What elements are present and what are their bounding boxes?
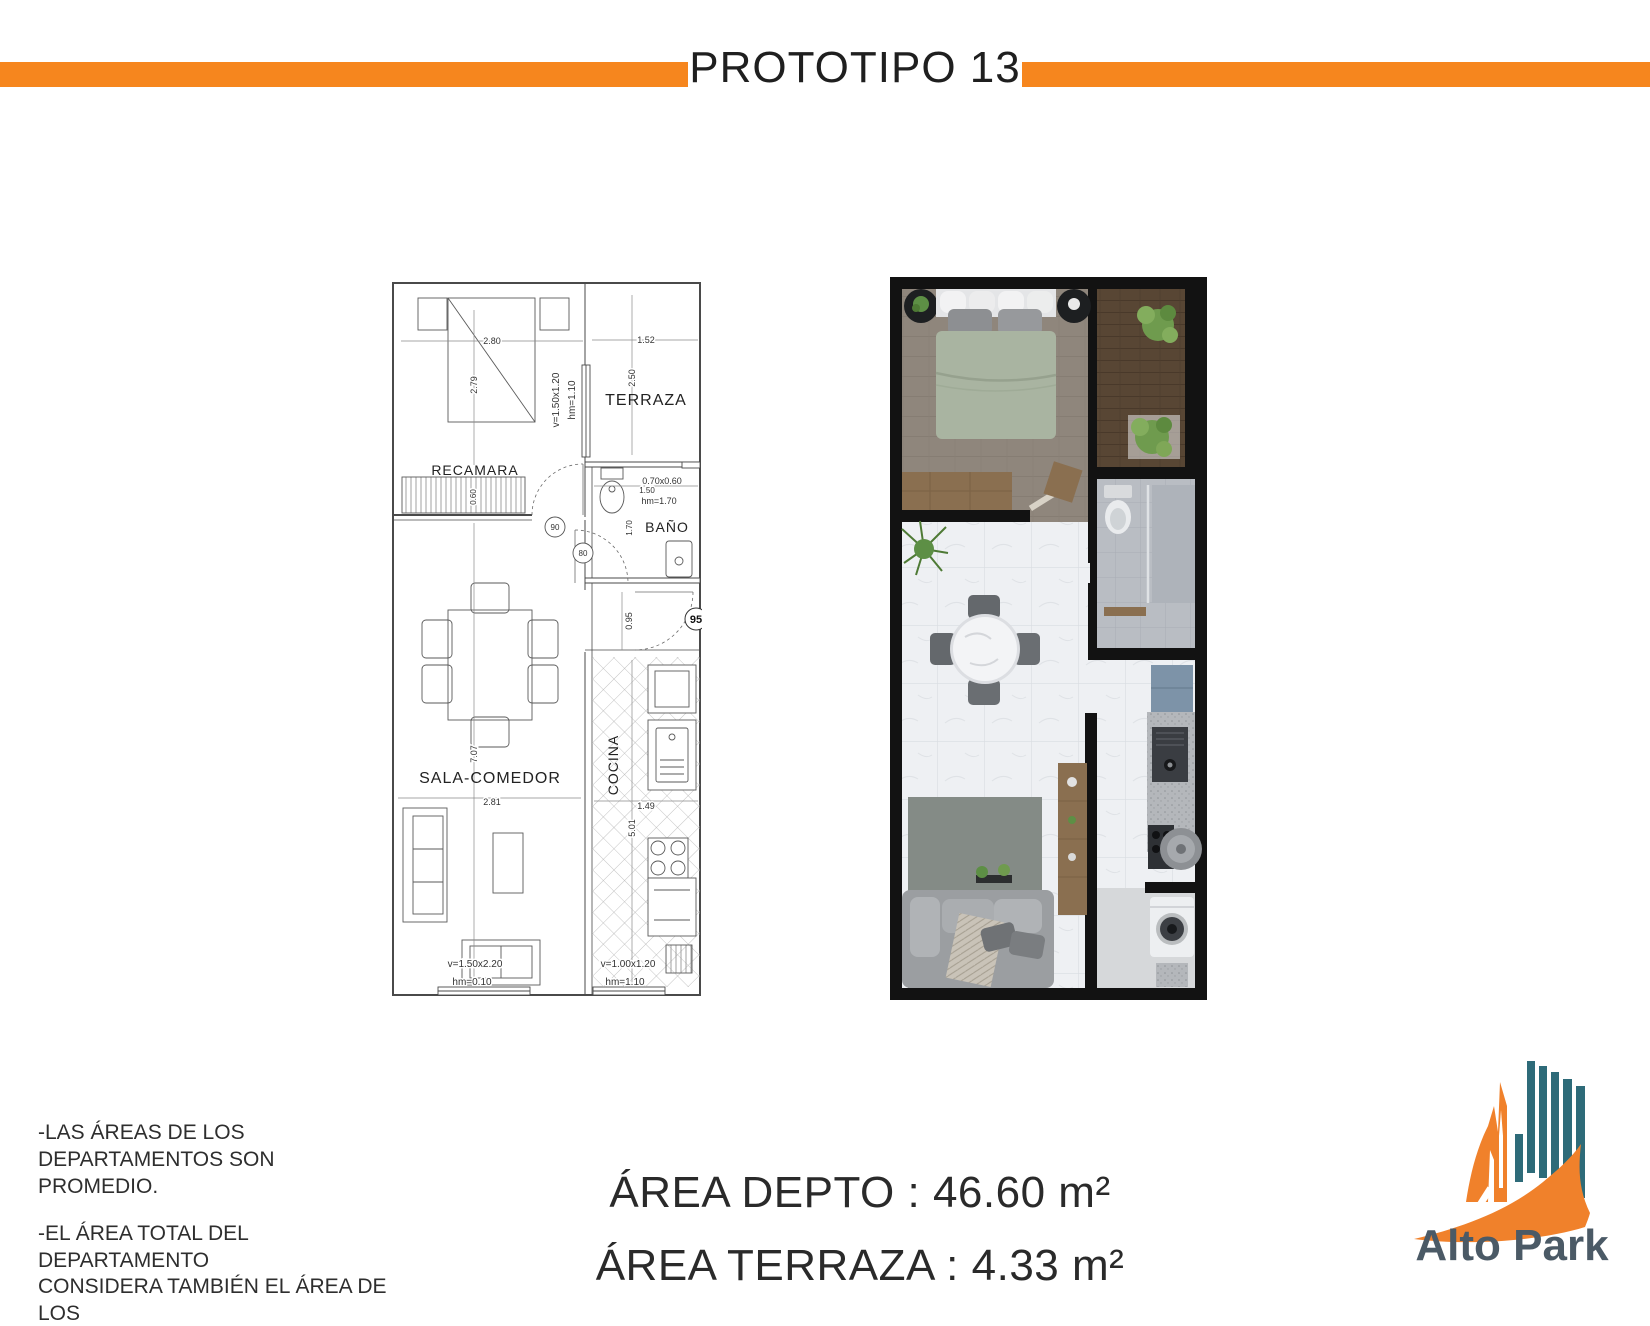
dim-bedroom-window-height: hm=1.10 xyxy=(567,380,578,420)
dining-set-drawing xyxy=(422,583,558,747)
render-bedroom-doorway xyxy=(1030,510,1088,522)
header-accent-bar-left xyxy=(0,62,688,87)
note-average-areas: -LAS ÁREAS DE LOS DEPARTAMENTOS SON PROM… xyxy=(38,1120,398,1201)
toilet-drawing xyxy=(600,468,624,513)
render-console xyxy=(1058,763,1087,915)
render-round-sink xyxy=(1160,828,1202,870)
render-terrace-plant-bottom xyxy=(1128,415,1180,459)
label-bedroom: RECAMARA xyxy=(431,462,518,478)
note-walls-included: -EL ÁREA TOTAL DEL DEPARTAMENTO CONSIDER… xyxy=(38,1221,398,1326)
render-coffee-plant-2 xyxy=(998,864,1010,876)
dim-living-length: 7.07 xyxy=(469,745,479,763)
render-nightstand-left xyxy=(904,289,938,323)
dim-entry-width: 0.95 xyxy=(624,612,634,630)
dim-kitchen-length: 5.01 xyxy=(627,819,637,837)
render-bed xyxy=(936,289,1056,439)
dim-terrace-depth: 2.50 xyxy=(627,369,637,387)
dim-bath-window-size: 0.70x0.60 xyxy=(642,476,682,486)
render-range-hood xyxy=(1152,727,1188,782)
dim-living-width: 2.81 xyxy=(483,797,501,807)
dim-bedroom-window-size: v=1.50x1.20 xyxy=(551,372,562,427)
label-kitchen: COCINA xyxy=(605,735,621,795)
render-nightstand-right xyxy=(1057,289,1091,323)
dim-kitchen-window-size: v=1.00x1.20 xyxy=(601,959,656,970)
logo-building-icon xyxy=(1414,1061,1590,1242)
dim-bath-width: 1.50 xyxy=(639,486,655,495)
level-mark-80: 80 xyxy=(579,549,588,558)
brand-logo: Alto Park xyxy=(1400,1038,1630,1278)
render-washing-machine xyxy=(1150,897,1194,957)
level-mark-90: 90 xyxy=(551,523,560,532)
render-sofa xyxy=(902,890,1054,988)
header-accent-bar-right xyxy=(1022,62,1650,87)
dim-terrace-width: 1.52 xyxy=(637,335,655,345)
page-title: PROTOTIPO 13 xyxy=(660,38,1050,98)
dim-kitchen-window-height: hm=1.10 xyxy=(605,977,645,988)
dim-living-window-height: hm=0.10 xyxy=(452,977,492,988)
brand-logo-graphic: Alto Park xyxy=(1400,1038,1630,1278)
dim-bedroom-depth: 2.79 xyxy=(469,376,479,394)
label-bathroom: BAÑO xyxy=(645,519,689,535)
dim-bath-depth: 1.70 xyxy=(625,520,634,536)
sink-drawing xyxy=(666,541,692,577)
level-mark-95: 95 xyxy=(690,614,702,626)
dim-bath-window-height: hm=1.70 xyxy=(641,496,676,506)
render-toilet xyxy=(1104,485,1132,534)
render-shower xyxy=(1152,485,1195,603)
page: PROTOTIPO 13 xyxy=(0,0,1650,1326)
bed-drawing xyxy=(418,298,569,422)
notes-block: -LAS ÁREAS DE LOS DEPARTAMENTOS SON PROM… xyxy=(38,1120,398,1326)
closet-drawing xyxy=(402,477,525,513)
render-floor-plan xyxy=(890,277,1207,1000)
render-laundry-mat xyxy=(1156,963,1188,987)
dim-closet-depth: 0.60 xyxy=(469,489,478,505)
dim-bedroom-width: 2.80 xyxy=(483,336,501,346)
dim-kitchen-width: 1.49 xyxy=(637,801,655,811)
render-bath-shelf xyxy=(1104,607,1146,616)
brand-name: Alto Park xyxy=(1415,1221,1609,1270)
area-apartment: ÁREA DEPTO : 46.60 m² xyxy=(560,1168,1160,1218)
area-summary: ÁREA DEPTO : 46.60 m² ÁREA TERRAZA : 4.3… xyxy=(560,1168,1160,1314)
label-living: SALA-COMEDOR xyxy=(419,770,561,787)
label-terrace: TERRAZA xyxy=(605,392,687,409)
dim-living-window-size: v=1.50x2.20 xyxy=(448,959,503,970)
area-terrace: ÁREA TERRAZA : 4.33 m² xyxy=(560,1241,1160,1291)
render-coffee-plant-1 xyxy=(976,866,988,878)
technical-floor-plan: RECAMARA TERRAZA BAÑO SALA-COMEDOR COCIN… xyxy=(370,265,702,1013)
